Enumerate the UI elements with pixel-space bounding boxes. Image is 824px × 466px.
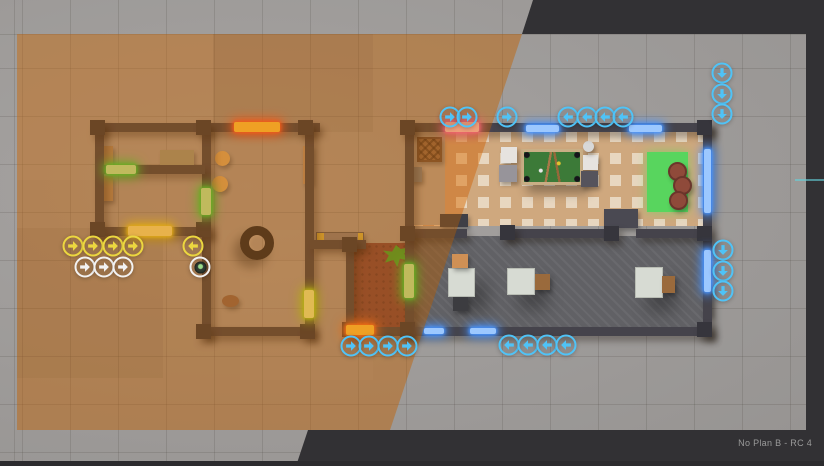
path-arrow-icon[interactable] [83, 236, 104, 257]
door-green-interior[interactable] [106, 165, 136, 174]
arrow-glyph [522, 339, 535, 352]
wall-post [342, 237, 357, 252]
wall-post [697, 322, 712, 337]
pool-table [521, 149, 583, 185]
arrow-glyph [345, 340, 358, 353]
arrow-glyph [363, 340, 376, 353]
arrow-glyph [716, 88, 729, 101]
arrow-glyph [117, 261, 130, 274]
tire [240, 226, 274, 260]
door-green-hall[interactable] [404, 264, 414, 298]
arrow-glyph [444, 111, 457, 124]
path-arrow-icon[interactable] [558, 107, 579, 128]
pouf [669, 191, 688, 210]
wall-post [196, 324, 211, 339]
path-arrow-icon[interactable] [183, 236, 204, 257]
window-glow [424, 328, 444, 334]
wall-post [298, 120, 313, 135]
arrow-glyph [107, 240, 120, 253]
arrow-glyph [127, 240, 140, 253]
version-label: No Plan B - RC 4 [738, 438, 812, 448]
path-arrow-icon[interactable] [713, 281, 734, 302]
wall-post [400, 226, 415, 241]
square-table [635, 267, 663, 298]
window-glow [526, 125, 559, 132]
arrow-glyph [617, 111, 630, 124]
arrow-glyph [79, 261, 92, 274]
arrow-glyph [501, 111, 514, 124]
round-stool [212, 176, 228, 192]
arrow-glyph [717, 244, 730, 257]
window-glow [629, 125, 662, 132]
path-arrow-icon[interactable] [497, 107, 518, 128]
window-glow [704, 250, 711, 292]
wall-post [604, 226, 619, 241]
path-arrow-icon[interactable] [63, 236, 84, 257]
cabinet [581, 171, 598, 187]
path-arrow-icon[interactable] [613, 107, 634, 128]
path-arrow-icon[interactable] [457, 107, 478, 128]
arrow-glyph [581, 111, 594, 124]
path-arrow-icon[interactable] [713, 240, 734, 261]
wall-post [500, 225, 515, 240]
arrow-glyph [560, 339, 573, 352]
path-arrow-icon[interactable] [94, 257, 115, 278]
cabinet [499, 165, 517, 182]
arrow-glyph [87, 240, 100, 253]
door-red-north[interactable] [234, 122, 280, 132]
window-glow [704, 149, 711, 213]
ground-patch [213, 34, 373, 132]
wall-post [196, 120, 211, 135]
arrow-glyph [562, 111, 575, 124]
wall-segment [502, 229, 608, 238]
white-stool [501, 147, 517, 163]
path-arrow-icon[interactable] [712, 104, 733, 125]
chair [453, 297, 468, 311]
door-green-mid[interactable] [201, 188, 211, 215]
wall-segment [346, 240, 354, 335]
letterbox-bottom-strip [0, 461, 824, 466]
wall-post [90, 120, 105, 135]
arrow-glyph [717, 285, 730, 298]
path-arrow-icon[interactable] [378, 336, 399, 357]
arrow-glyph [461, 111, 474, 124]
path-arrow-icon[interactable] [397, 336, 418, 357]
white-stool [583, 155, 598, 170]
wall-segment [412, 229, 467, 238]
scan-line [795, 179, 824, 181]
wall-segment [202, 327, 314, 336]
arrow-glyph [541, 339, 554, 352]
arrow-glyph [401, 340, 414, 353]
window-glow [470, 328, 496, 334]
wall-segment [95, 123, 104, 236]
path-arrow-icon[interactable] [103, 236, 124, 257]
path-arrow-icon[interactable] [712, 63, 733, 84]
rock [222, 295, 239, 307]
wicker-basket [417, 137, 442, 162]
path-arrow-icon[interactable] [75, 257, 96, 278]
arrow-glyph [716, 67, 729, 80]
door-green-east[interactable] [304, 290, 314, 318]
path-arrow-icon[interactable] [537, 335, 558, 356]
wall-post [400, 120, 415, 135]
path-arrow-icon[interactable] [499, 335, 520, 356]
wall-segment [636, 229, 704, 238]
wall-segment [405, 327, 712, 336]
path-arrow-icon[interactable] [359, 336, 380, 357]
wall-cabinet [440, 214, 468, 227]
floor-lamp [583, 141, 594, 152]
arrow-glyph [716, 108, 729, 121]
square-table [507, 268, 535, 295]
path-arrow-icon[interactable] [518, 335, 539, 356]
letterbox-right-band [806, 34, 824, 430]
chair [662, 276, 675, 293]
gadget-icon [194, 261, 206, 273]
wall-post [697, 226, 712, 241]
arrow-glyph [599, 111, 612, 124]
arrow-glyph [717, 265, 730, 278]
path-arrow-icon[interactable] [123, 236, 144, 257]
wall-post [300, 324, 315, 339]
arrow-glyph [382, 340, 395, 353]
door-yellow-west[interactable] [128, 226, 172, 236]
door-orange-south[interactable] [346, 325, 374, 335]
round-stool [215, 151, 230, 166]
arrow-glyph [187, 240, 200, 253]
path-arrow-icon[interactable] [556, 335, 577, 356]
wall-post [196, 222, 211, 237]
path-arrow-icon[interactable] [713, 261, 734, 282]
chair [535, 274, 550, 290]
tactical-map-view[interactable]: No Plan B - RC 4 [0, 0, 824, 466]
wall-post [697, 120, 712, 135]
wall-segment [310, 240, 366, 249]
gadget-badge[interactable] [190, 257, 211, 278]
arrow-glyph [503, 339, 516, 352]
path-arrow-icon[interactable] [113, 257, 134, 278]
square-table [448, 268, 475, 297]
chair [452, 254, 468, 268]
path-arrow-icon[interactable] [712, 84, 733, 105]
arrow-glyph [98, 261, 111, 274]
arrow-glyph [67, 240, 80, 253]
